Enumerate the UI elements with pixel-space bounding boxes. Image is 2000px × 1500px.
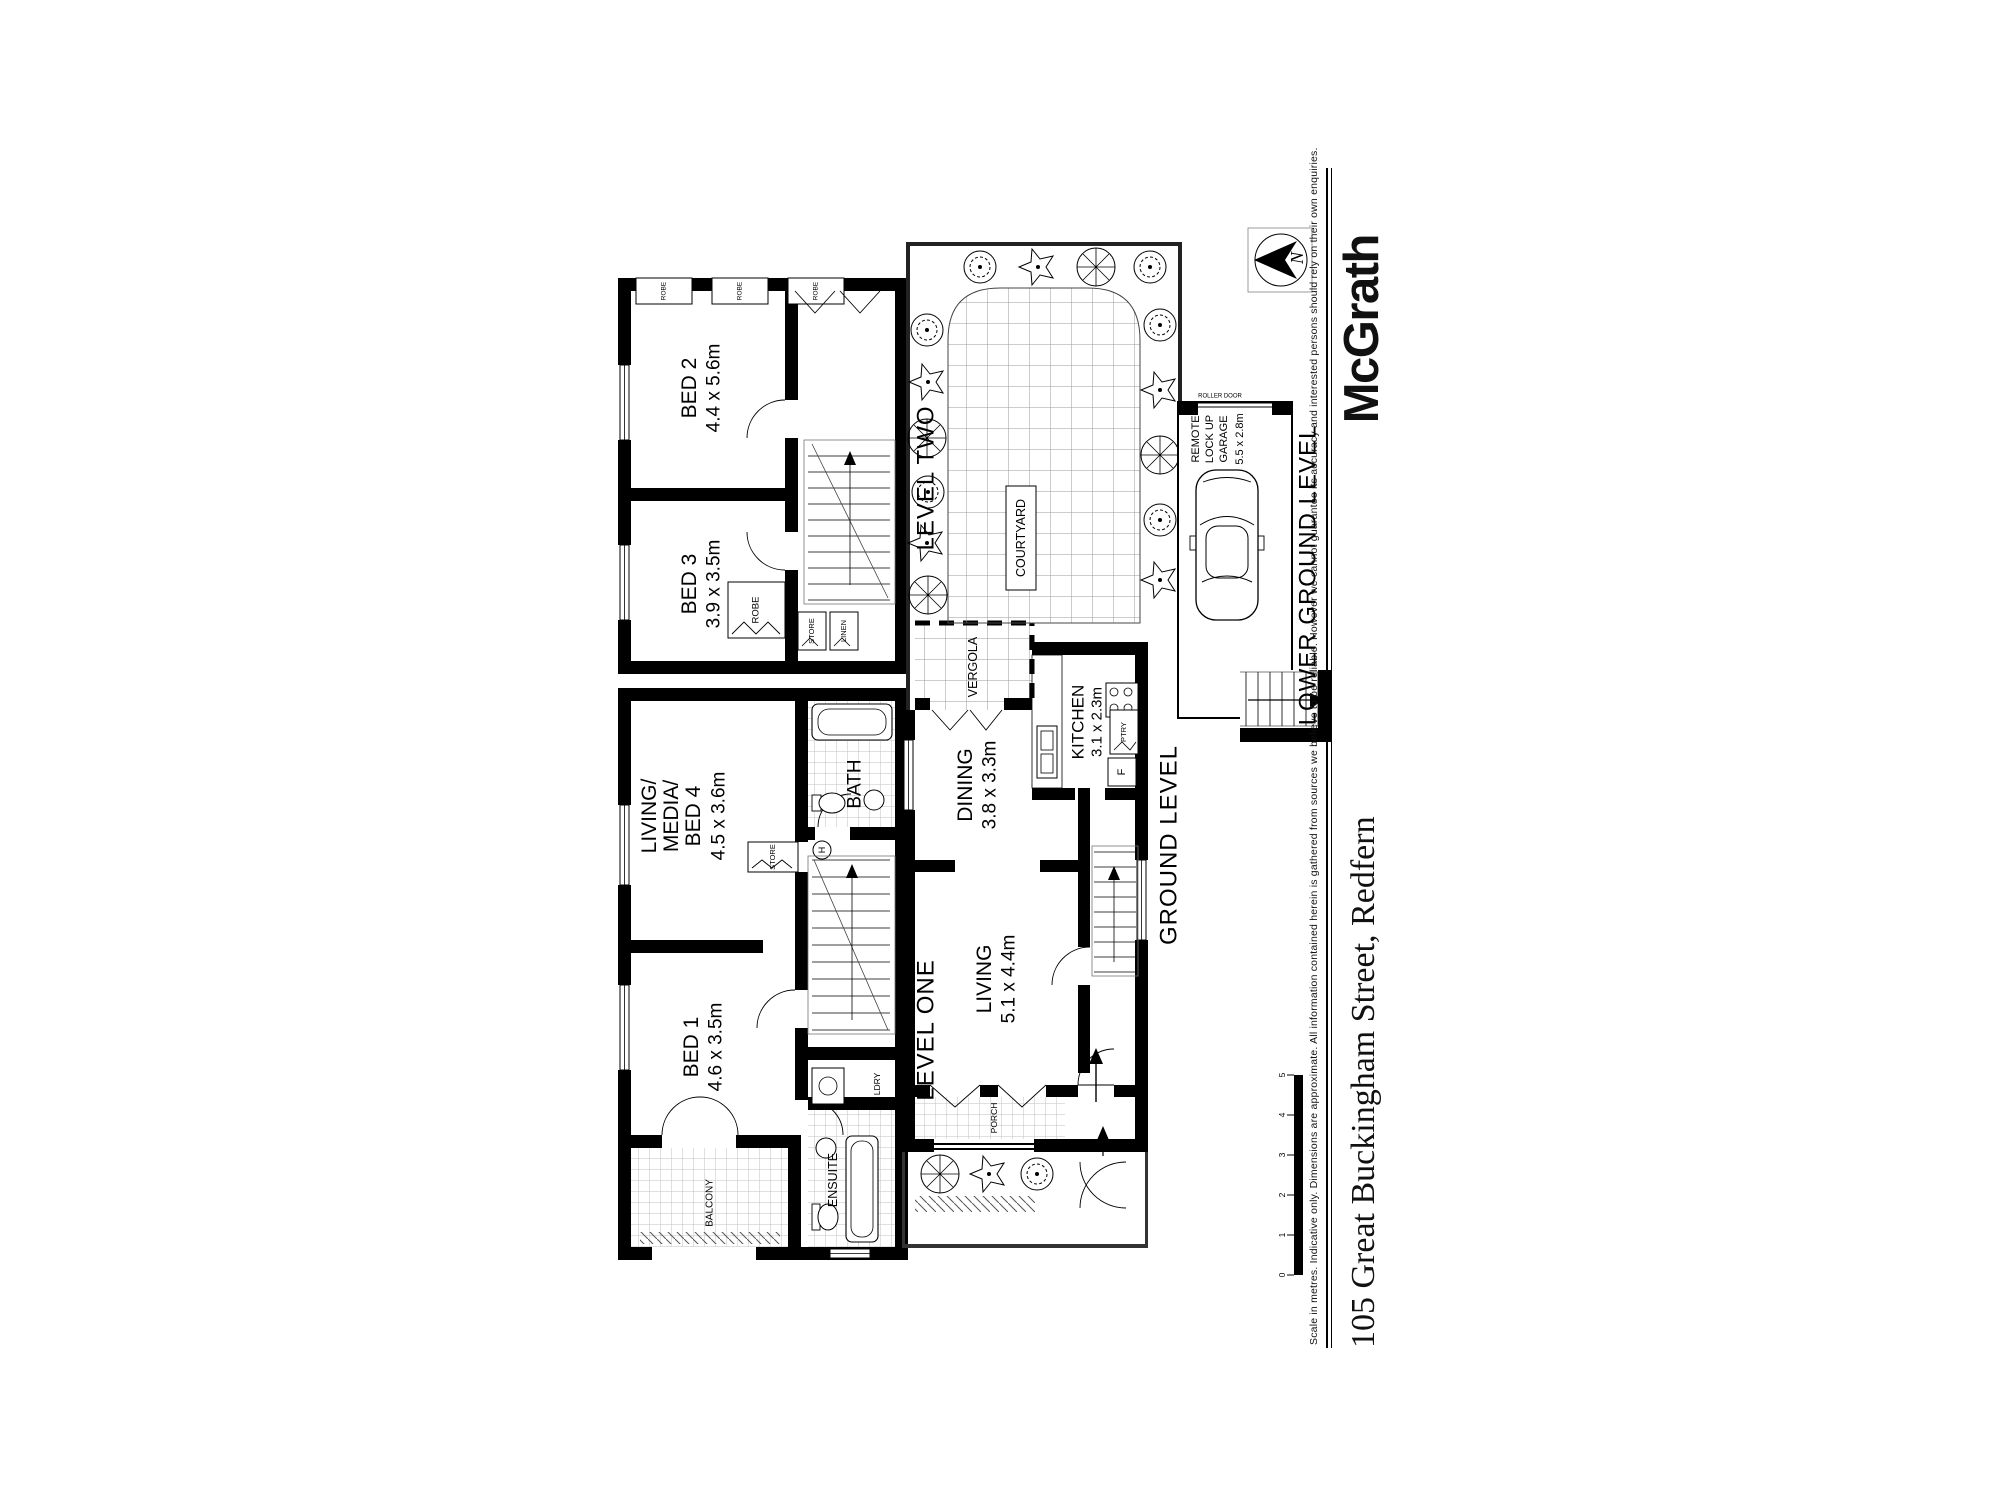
garage-label-3: GARAGE: [1218, 415, 1230, 462]
room-label-balcony: BALCONY: [704, 1179, 715, 1227]
room-dims-bed1: 4.6 x 3.5m: [705, 1003, 726, 1092]
robe-niche-label-3: ROBE: [812, 282, 819, 300]
room-label-ldry: LDRY: [873, 1073, 883, 1096]
room-dims-dining: 3.8 x 3.3m: [979, 741, 1000, 830]
scale-bar: [1287, 1075, 1303, 1275]
robe-label-bed3: ROBE: [752, 597, 763, 624]
room-dims-bed2: 4.4 x 5.6m: [703, 344, 724, 433]
closet-label-store-l1: STORE: [769, 844, 777, 870]
room-label-courtyard: COURTYARD: [1014, 499, 1028, 577]
ground-level-title: GROUND LEVEL: [1157, 745, 1184, 945]
room-dims-kitchen: 3.1 x 2.3m: [1090, 687, 1107, 757]
scale-num-4: 4: [1278, 1113, 1288, 1118]
property-address: 105 Great Buckingham Street, Redfern: [1345, 816, 1383, 1348]
room-label-bed2: BED 2: [678, 358, 702, 419]
room-dims-living: 5.1 x 4.4m: [998, 935, 1019, 1024]
roller-door-label: ROLLER DOOR: [1198, 394, 1242, 401]
ground-level-plan: [902, 242, 1182, 1248]
garage-dims: 5.5 x 2.8m: [1234, 413, 1246, 464]
scale-num-5: 5: [1278, 1073, 1288, 1078]
room-label-bed1: BED 1: [680, 1017, 704, 1078]
garage-label-2: LOCK UP: [1204, 415, 1216, 463]
room-label-vergola: VERGOLA: [966, 637, 980, 697]
room-label-living-media-1: LIVING/: [638, 779, 662, 854]
hot-water-label: H: [817, 847, 827, 854]
closet-label-linen: LINEN: [840, 620, 848, 642]
closet-label-store-l2: STORE: [808, 618, 816, 644]
brand-logo: McGrath: [1334, 235, 1390, 540]
room-label-kitchen: KITCHEN: [1068, 685, 1087, 760]
room-label-living-media-2: MEDIA/: [660, 780, 684, 852]
level-two-plan: [618, 278, 908, 674]
stairs-ground: [1092, 846, 1138, 976]
room-label-bath: BATH: [844, 759, 865, 808]
room-label-bed3: BED 3: [678, 554, 702, 615]
room-label-ensuite: ENSUITE: [826, 1153, 840, 1207]
room-label-living-media-3: BED 4: [682, 786, 706, 847]
stairs-level-one: [808, 856, 895, 1034]
scale-num-0: 0: [1278, 1273, 1288, 1278]
disclaimer-text: Scale in metres. Indicative only. Dimens…: [1308, 147, 1320, 1345]
scale-num-3: 3: [1278, 1153, 1288, 1158]
room-dims-living-media: 4.5 x 3.6m: [708, 772, 729, 861]
level-two-title: LEVEL TWO: [914, 405, 941, 550]
level-one-title: LEVEL ONE: [914, 959, 941, 1101]
floorplan-page: LEVEL ONE LEVEL TWO GROUND LEVEL LOWER G…: [0, 0, 2000, 1500]
robe-niche-label-1: ROBE: [660, 282, 667, 300]
room-dims-bed3: 3.9 x 3.5m: [703, 540, 724, 629]
room-label-porch: PORCH: [990, 1103, 1000, 1134]
pantry-label: PTRY: [1120, 722, 1128, 742]
robe-niche-label-2: ROBE: [736, 282, 743, 300]
scale-num-1: 1: [1278, 1233, 1288, 1238]
garage-label-1: REMOTE: [1190, 415, 1202, 462]
portrait-plan: LEVEL ONE LEVEL TWO GROUND LEVEL LOWER G…: [0, 0, 2000, 1500]
room-label-dining: DINING: [954, 748, 978, 822]
fridge-label: F: [1116, 769, 1128, 776]
scale-num-2: 2: [1278, 1193, 1288, 1198]
footer-rule-bottom: [1331, 168, 1332, 1348]
room-label-living: LIVING: [973, 945, 997, 1014]
north-letter: N: [1287, 252, 1307, 264]
footer-rule-top: [1326, 168, 1328, 1348]
